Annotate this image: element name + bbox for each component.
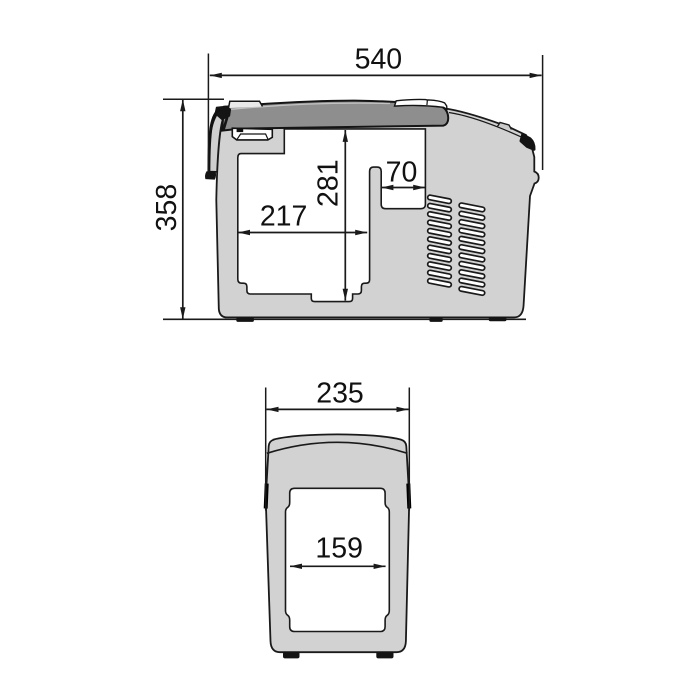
svg-text:281: 281	[313, 159, 345, 207]
svg-text:217: 217	[260, 201, 308, 233]
svg-text:540: 540	[355, 44, 403, 76]
svg-text:159: 159	[315, 533, 363, 565]
svg-text:358: 358	[151, 184, 183, 232]
svg-text:70: 70	[386, 156, 418, 188]
svg-text:235: 235	[316, 378, 364, 410]
